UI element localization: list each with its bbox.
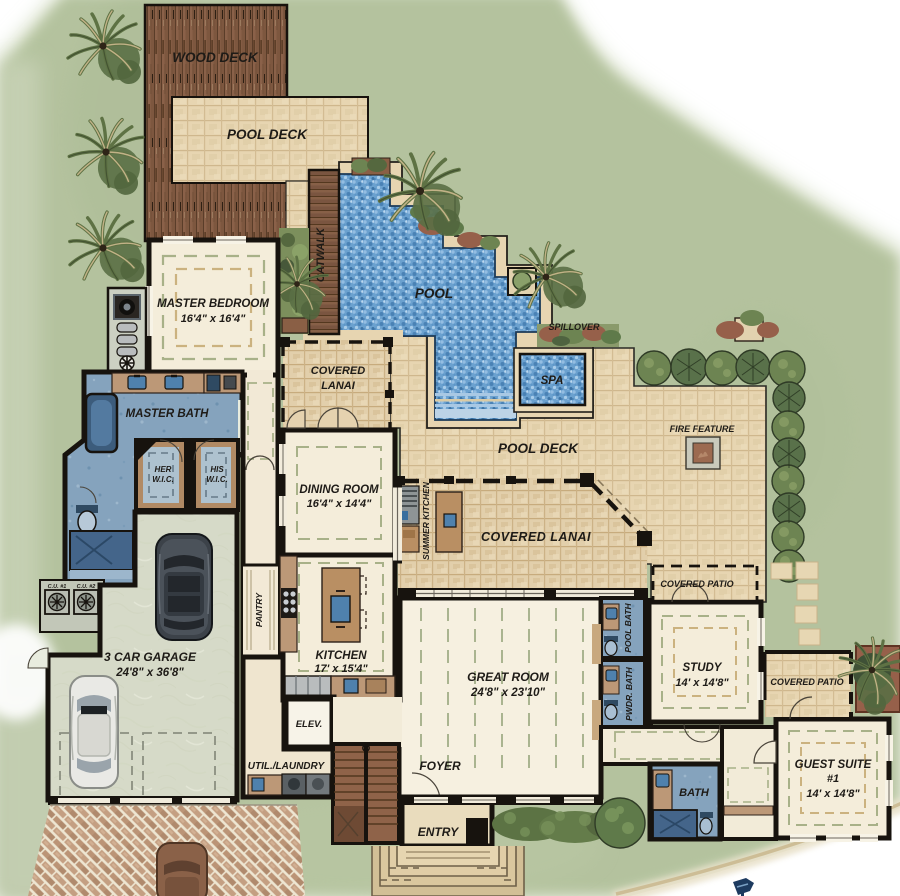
svg-text:POOL DECK: POOL DECK bbox=[498, 441, 579, 456]
svg-text:MASTER BATH: MASTER BATH bbox=[126, 408, 210, 420]
svg-text:WOOD DECK: WOOD DECK bbox=[172, 50, 259, 65]
svg-text:#1: #1 bbox=[827, 773, 839, 785]
svg-text:W.I.C.: W.I.C. bbox=[152, 475, 174, 484]
svg-text:MASTER BEDROOM: MASTER BEDROOM bbox=[157, 298, 269, 310]
svg-text:SPA: SPA bbox=[541, 375, 564, 387]
svg-text:C.U. #2: C.U. #2 bbox=[77, 584, 96, 590]
svg-text:COVERED LANAI: COVERED LANAI bbox=[481, 530, 591, 544]
svg-text:FIRE FEATURE: FIRE FEATURE bbox=[670, 424, 736, 434]
svg-text:3 CAR GARAGE: 3 CAR GARAGE bbox=[104, 650, 197, 664]
svg-text:16'4" x 16'4": 16'4" x 16'4" bbox=[181, 313, 246, 325]
svg-text:16'4" x 14'4": 16'4" x 14'4" bbox=[307, 498, 372, 510]
svg-text:LANAI: LANAI bbox=[321, 380, 356, 392]
svg-text:ENTRY: ENTRY bbox=[418, 825, 459, 839]
svg-text:PANTRY: PANTRY bbox=[254, 592, 264, 627]
svg-text:24'8" x 23'10": 24'8" x 23'10" bbox=[470, 687, 545, 699]
svg-text:KITCHEN: KITCHEN bbox=[315, 650, 367, 662]
svg-text:BATH: BATH bbox=[679, 787, 710, 799]
svg-text:FOYER: FOYER bbox=[419, 759, 461, 773]
svg-text:17' x 15'4": 17' x 15'4" bbox=[314, 663, 368, 675]
svg-text:W.I.C.: W.I.C. bbox=[206, 475, 228, 484]
svg-text:HER: HER bbox=[155, 465, 172, 474]
svg-text:SUMMER KITCHEN: SUMMER KITCHEN bbox=[421, 481, 431, 560]
svg-text:COVERED PATIO: COVERED PATIO bbox=[660, 579, 733, 589]
svg-text:HIS: HIS bbox=[210, 465, 224, 474]
svg-text:14' x 14'8": 14' x 14'8" bbox=[806, 788, 860, 800]
svg-text:POOL DECK: POOL DECK bbox=[227, 127, 308, 142]
svg-text:UTIL./LAUNDRY: UTIL./LAUNDRY bbox=[248, 761, 326, 772]
svg-text:COVERED PATIO: COVERED PATIO bbox=[770, 677, 843, 687]
svg-text:ELEV.: ELEV. bbox=[296, 719, 323, 730]
svg-text:24'8" x 36'8": 24'8" x 36'8" bbox=[115, 667, 184, 679]
svg-text:14' x 14'8": 14' x 14'8" bbox=[675, 677, 729, 689]
svg-text:POOL BATH: POOL BATH bbox=[623, 603, 633, 653]
svg-text:CATWALK: CATWALK bbox=[315, 227, 327, 282]
svg-text:PWDR. BATH: PWDR. BATH bbox=[624, 666, 634, 721]
svg-text:GREAT ROOM: GREAT ROOM bbox=[467, 670, 550, 684]
svg-text:POOL: POOL bbox=[415, 286, 453, 301]
svg-text:C.U. #1: C.U. #1 bbox=[48, 584, 67, 590]
svg-text:DINING ROOM: DINING ROOM bbox=[299, 484, 379, 496]
svg-text:SPILLOVER: SPILLOVER bbox=[548, 322, 600, 332]
svg-text:STUDY: STUDY bbox=[683, 662, 723, 674]
svg-text:GUEST SUITE: GUEST SUITE bbox=[795, 759, 872, 771]
svg-text:COVERED: COVERED bbox=[311, 365, 365, 377]
